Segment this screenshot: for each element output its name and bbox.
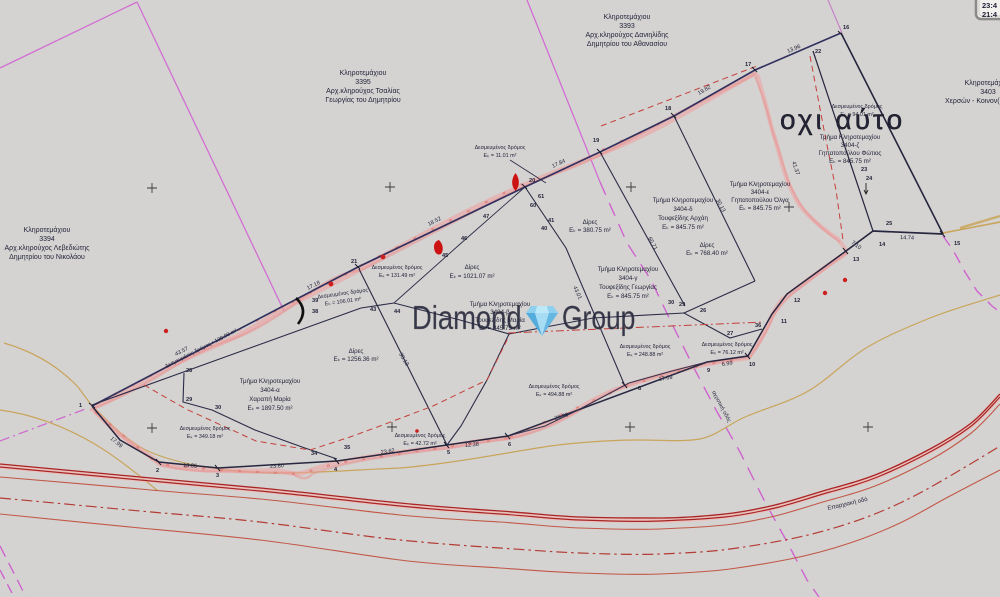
svg-text:13.05: 13.05 — [183, 463, 197, 470]
svg-text:Εₖ = 845.75 m²: Εₖ = 845.75 m² — [739, 205, 781, 212]
svg-text:20: 20 — [529, 178, 535, 184]
svg-text:16: 16 — [843, 25, 849, 31]
svg-text:12.38: 12.38 — [465, 442, 479, 449]
svg-text:Εₖ = 1256.36 m²: Εₖ = 1256.36 m² — [333, 356, 378, 363]
svg-text:29: 29 — [679, 302, 685, 308]
svg-text:3403: 3403 — [980, 89, 996, 96]
svg-text:26: 26 — [700, 308, 706, 314]
svg-text:14.74: 14.74 — [900, 235, 914, 241]
svg-text:Αρχ.κληρούχος Λεβεδιώτης: Αρχ.κληρούχος Λεβεδιώτης — [5, 244, 91, 252]
svg-text:11: 11 — [781, 319, 787, 325]
svg-text:Εₖ = 76.12 m²: Εₖ = 76.12 m² — [710, 350, 744, 356]
svg-text:30: 30 — [668, 300, 674, 306]
svg-text:Δίρες: Δίρες — [583, 219, 598, 226]
svg-text:Εₖ = 1021.07 m²: Εₖ = 1021.07 m² — [449, 273, 494, 280]
svg-text:3404-ε: 3404-ε — [751, 189, 770, 196]
svg-text:14: 14 — [879, 242, 886, 248]
svg-text:60: 60 — [530, 203, 536, 209]
svg-text:Τμήμα Κληροτεμαχίου: Τμήμα Κληροτεμαχίου — [820, 134, 881, 141]
svg-text:21:4: 21:4 — [982, 10, 998, 19]
svg-text:39: 39 — [312, 298, 318, 304]
svg-text:61: 61 — [538, 194, 544, 200]
svg-text:22: 22 — [815, 49, 821, 55]
svg-text:Τμήμα Κληροτεμαχίου: Τμήμα Κληροτεμαχίου — [653, 197, 714, 204]
svg-text:Group: Group — [562, 300, 635, 336]
svg-text:40: 40 — [541, 226, 547, 232]
svg-text:3404-γ: 3404-γ — [619, 275, 639, 282]
svg-text:Τουφεξίδης Γεωργίας: Τουφεξίδης Γεωργίας — [599, 284, 657, 291]
svg-text:Εₖ = 11.01 m²: Εₖ = 11.01 m² — [484, 153, 517, 159]
svg-text:36: 36 — [755, 323, 761, 329]
svg-text:8: 8 — [638, 386, 641, 392]
svg-text:15: 15 — [954, 241, 960, 247]
svg-text:38: 38 — [312, 309, 318, 315]
svg-text:Κληροτεμάχιου: Κληροτεμάχιου — [965, 79, 1000, 87]
svg-text:Δίρες: Δίρες — [349, 348, 364, 355]
svg-text:Τμήμα Κληροτεμαχίου: Τμήμα Κληροτεμαχίου — [240, 378, 301, 385]
svg-text:Εₖ = 349.18 m²: Εₖ = 349.18 m² — [187, 434, 224, 440]
svg-text:21: 21 — [351, 259, 357, 265]
svg-text:Εₖ = 248.88 m²: Εₖ = 248.88 m² — [627, 352, 664, 358]
svg-text:Δεσμευμένος δρόμος: Δεσμευμένος δρόμος — [180, 425, 231, 432]
svg-text:28: 28 — [186, 368, 192, 374]
svg-text:Εₖ = 845.75 m²: Εₖ = 845.75 m² — [607, 293, 649, 300]
svg-text:46: 46 — [461, 236, 467, 242]
svg-text:23:4: 23:4 — [982, 1, 998, 10]
svg-text:13: 13 — [853, 257, 859, 263]
svg-text:Χερσών - Κοινον(Κοινοτική): Χερσών - Κοινον(Κοινοτική) — [945, 97, 1000, 105]
svg-text:Αρχ.κληρούχος Δανιηλίδης: Αρχ.κληρούχος Δανιηλίδης — [585, 31, 669, 39]
svg-text:Χαραπή Μαρία: Χαραπή Μαρία — [249, 396, 291, 403]
svg-text:5: 5 — [447, 450, 450, 456]
svg-text:3393: 3393 — [619, 23, 635, 30]
svg-text:Δημητρίου του Αθανασίου: Δημητρίου του Αθανασίου — [587, 40, 667, 48]
svg-text:Τουφεξίδης Αρχάη: Τουφεξίδης Αρχάη — [658, 215, 708, 222]
svg-text:Εₖ = 845.75 m²: Εₖ = 845.75 m² — [829, 158, 871, 165]
svg-text:Δεσμευμένος δρόμος: Δεσμευμένος δρόμος — [702, 341, 753, 348]
svg-text:Δίρες: Δίρες — [465, 264, 480, 271]
svg-text:35: 35 — [344, 445, 350, 451]
svg-text:3395: 3395 — [355, 79, 371, 86]
svg-text:18: 18 — [665, 106, 671, 112]
svg-text:Κληροτεμάχιου: Κληροτεμάχιου — [604, 13, 651, 21]
svg-text:41: 41 — [548, 218, 554, 224]
svg-text:6: 6 — [508, 442, 511, 448]
svg-text:Εₖ = 1897.50 m²: Εₖ = 1897.50 m² — [247, 405, 292, 412]
svg-text:Αρχ.κληρούχος Τσαλίας: Αρχ.κληρούχος Τσαλίας — [326, 87, 400, 95]
svg-text:3404-ζ: 3404-ζ — [841, 142, 860, 149]
svg-text:12: 12 — [794, 298, 800, 304]
svg-text:Εₖ = 845.75 m²: Εₖ = 845.75 m² — [662, 224, 704, 231]
svg-text:45: 45 — [442, 253, 448, 259]
svg-text:Δεσμευμένος δρόμος: Δεσμευμένος δρόμος — [620, 343, 671, 350]
svg-text:Δίρες: Δίρες — [700, 242, 715, 249]
svg-text:1: 1 — [79, 403, 82, 409]
svg-text:19: 19 — [593, 138, 599, 144]
svg-text:3404-δ: 3404-δ — [673, 206, 693, 213]
svg-text:10: 10 — [749, 362, 755, 368]
svg-text:30: 30 — [215, 405, 221, 411]
svg-text:Εₖ = 42.72 m²: Εₖ = 42.72 m² — [403, 441, 437, 447]
svg-text:Εₖ = 494.88 m²: Εₖ = 494.88 m² — [536, 392, 573, 398]
svg-text:Εₖ = 380.75 m²: Εₖ = 380.75 m² — [569, 227, 611, 234]
svg-text:Εₖ = 131.49 m²: Εₖ = 131.49 m² — [379, 273, 416, 279]
svg-text:Γεωργίας του Δημητρίου: Γεωργίας του Δημητρίου — [325, 96, 400, 104]
svg-text:43: 43 — [370, 307, 376, 313]
svg-text:Γηπατοπούλου Φώτιος: Γηπατοπούλου Φώτιος — [819, 150, 882, 157]
svg-text:29: 29 — [186, 397, 192, 403]
svg-text:Δεσμευμένος δρόμος: Δεσμευμένος δρόμος — [529, 383, 580, 390]
svg-text:Diamond: Diamond — [412, 301, 522, 337]
svg-text:3: 3 — [216, 473, 219, 479]
svg-text:οχι αύτο: οχι αύτο — [780, 104, 905, 135]
svg-text:27: 27 — [727, 331, 733, 337]
svg-text:23: 23 — [861, 167, 867, 173]
svg-text:Δημητρίου του Νικολάου: Δημητρίου του Νικολάου — [9, 253, 85, 261]
svg-text:Τμήμα Κληροτεμαχίου: Τμήμα Κληροτεμαχίου — [598, 266, 659, 273]
svg-text:Δεσμευμένος δρόμος: Δεσμευμένος δρόμος — [475, 144, 526, 151]
svg-text:2: 2 — [156, 468, 159, 474]
svg-text:Δεσμευμένος δρόμος: Δεσμευμένος δρόμος — [395, 432, 446, 439]
svg-text:Τμήμα Κληροτεμαχίου: Τμήμα Κληροτεμαχίου — [730, 181, 791, 188]
svg-text:Δεσμευμένος δρόμος: Δεσμευμένος δρόμος — [372, 264, 423, 271]
svg-text:Κληροτεμάχιου: Κληροτεμάχιου — [340, 69, 387, 77]
svg-text:24: 24 — [866, 176, 873, 182]
svg-text:44: 44 — [394, 309, 401, 315]
svg-text:Εₖ = 768.40 m²: Εₖ = 768.40 m² — [686, 250, 728, 257]
svg-text:3394: 3394 — [39, 236, 55, 243]
svg-text:9: 9 — [707, 368, 710, 374]
svg-text:Κληροτεμάχιου: Κληροτεμάχιου — [24, 226, 71, 234]
svg-text:17: 17 — [745, 62, 751, 68]
svg-text:23.80: 23.80 — [270, 463, 284, 470]
svg-text:47: 47 — [483, 214, 489, 220]
svg-text:Γηπατοπούλου Όλγα: Γηπατοπούλου Όλγα — [731, 197, 789, 204]
svg-text:25: 25 — [886, 221, 892, 227]
svg-text:3404-α: 3404-α — [260, 387, 280, 394]
svg-text:34: 34 — [311, 451, 318, 457]
